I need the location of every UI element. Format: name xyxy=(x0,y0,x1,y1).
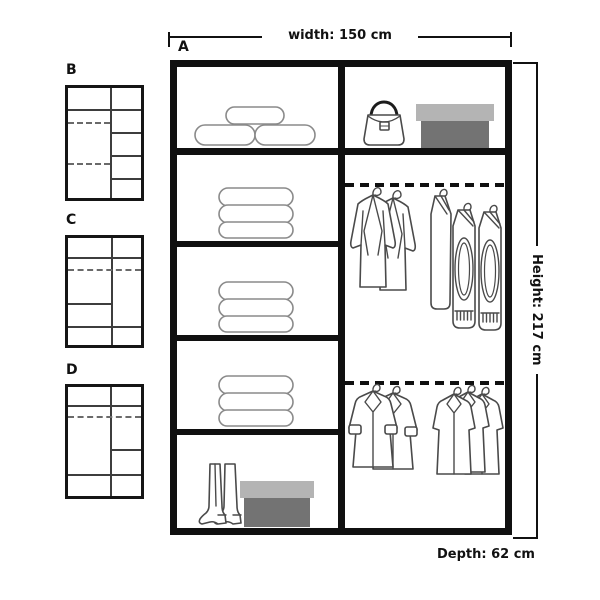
main-wardrobe xyxy=(170,60,512,535)
variant-label-a: A xyxy=(178,39,189,55)
thumb-d-right-shelf xyxy=(112,449,141,451)
shoebox-icon-top xyxy=(415,104,495,148)
height-tick-top xyxy=(513,62,537,64)
left-shelf-3 xyxy=(177,429,338,435)
width-tick-right xyxy=(510,32,512,47)
thumb-b-rail-2 xyxy=(68,163,110,165)
thumb-b-right-shelf-1 xyxy=(112,132,141,134)
rolled-duvets-icon xyxy=(193,105,317,148)
shoebox-icon-bottom xyxy=(239,479,315,527)
thumb-d-shelf-top xyxy=(68,405,141,407)
thumb-c-left-shelf xyxy=(68,303,111,305)
folded-stack-icon-2 xyxy=(217,280,295,334)
folded-stack-icon-1 xyxy=(217,186,295,240)
height-tick-bottom xyxy=(513,537,537,539)
variant-thumbnail-c xyxy=(65,235,144,348)
thumb-b-rail-1 xyxy=(68,122,110,124)
wardrobe-layout-diagram: width: 150 cm A Height: 217 cm Depth: 62… xyxy=(0,0,600,600)
width-line-right xyxy=(418,36,510,38)
height-dimension-label: Height: 217 cm xyxy=(527,246,546,374)
thumb-b-right-shelf-3 xyxy=(112,178,141,180)
variant-thumbnail-b xyxy=(65,85,144,201)
coats-icons xyxy=(345,381,505,483)
variant-label-c: C xyxy=(66,212,76,228)
thumb-c-shelf-top xyxy=(68,257,141,259)
left-shelf-1 xyxy=(177,241,338,247)
thumb-c-rail xyxy=(68,269,141,271)
variant-label-d: D xyxy=(66,362,78,378)
variant-thumbnail-d xyxy=(65,384,144,499)
thumb-d-shelf-bottom xyxy=(68,474,141,476)
thumb-d-rail xyxy=(68,416,141,418)
folded-stack-icon-3 xyxy=(217,374,295,428)
thumb-b-right-shelf-2 xyxy=(112,155,141,157)
thumb-b-divider xyxy=(110,88,112,198)
width-dimension-label: width: 150 cm xyxy=(262,28,418,43)
thumb-c-divider xyxy=(111,238,113,345)
width-line-left xyxy=(170,36,262,38)
top-shelf xyxy=(177,148,505,155)
variant-label-b: B xyxy=(66,62,77,78)
thumb-c-shelf-bottom xyxy=(68,326,141,328)
width-tick-left xyxy=(168,32,170,47)
depth-dimension-label: Depth: 62 cm xyxy=(437,547,535,562)
thumb-d-divider xyxy=(110,387,112,496)
jackets-and-sweaters-icons xyxy=(345,183,505,338)
width-measurement: width: 150 cm xyxy=(168,32,512,50)
handbag-icon xyxy=(361,91,407,148)
left-shelf-2 xyxy=(177,335,338,341)
center-divider xyxy=(338,67,345,528)
thumb-b-shelf-top xyxy=(68,109,141,111)
